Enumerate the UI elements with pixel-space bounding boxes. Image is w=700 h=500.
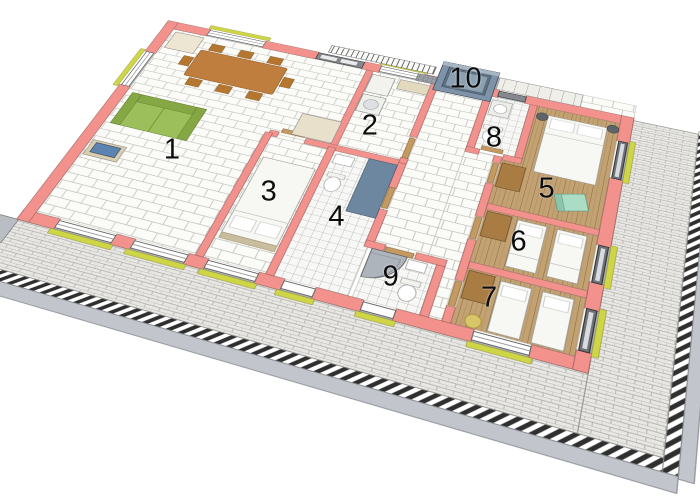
plan-svg [0, 0, 700, 500]
plan-3d-layer [0, 0, 700, 500]
floorplan-3d-render: 1 2 3 4 5 6 7 8 9 10 [0, 0, 700, 500]
